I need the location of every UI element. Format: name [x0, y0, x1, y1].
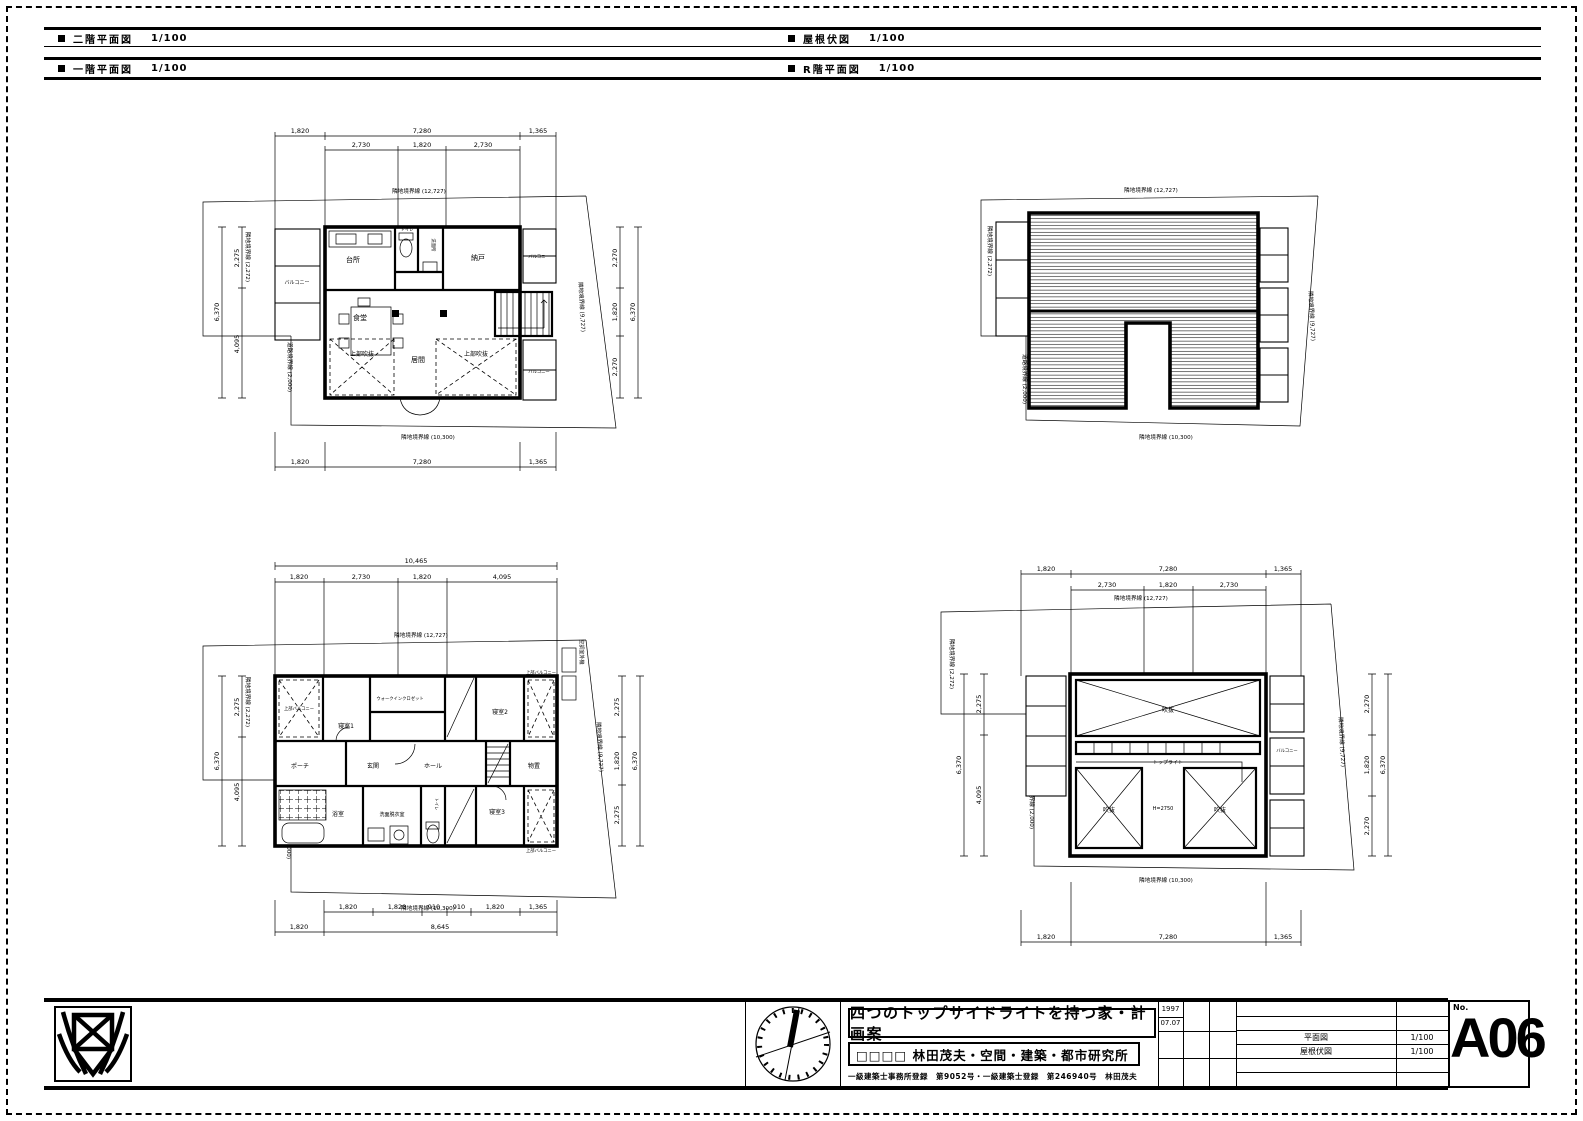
room-label-void: 吹抜: [1103, 806, 1115, 814]
section-marker-icon: [788, 35, 795, 42]
room-label-toplight: トップライト: [1153, 760, 1183, 766]
dim-label: 1,820: [291, 127, 310, 135]
dim-label: 1,820: [1363, 756, 1371, 775]
dim-label: 4,095: [233, 335, 241, 354]
dim-label: 2,275: [613, 698, 621, 717]
dim-label: 1,365: [529, 127, 548, 135]
date-year: 1997: [1158, 1005, 1183, 1013]
dim-label: 2,275: [975, 695, 983, 714]
date-monthday: 07.07: [1158, 1019, 1183, 1027]
office-logo-icon: [56, 1008, 130, 1080]
room-label-porch: ポーチ: [291, 762, 309, 770]
drawing-name-cell: 屋根伏図: [1236, 1045, 1396, 1058]
boundary-label: 隣地境界線 (9,727): [577, 282, 588, 332]
header-rule: [44, 77, 1541, 80]
boundary-label: 隣地境界線 (9,727): [1337, 717, 1348, 767]
view-title-rf: R階平面図 1/100: [788, 61, 915, 76]
dim-label: 8,645: [431, 923, 450, 931]
room-label-wic: ウォークインクロゼット: [376, 695, 423, 702]
drawing-sheet: 二階平面図 1/100 屋根伏図 1/100 一階平面図 1/100 R階平面図…: [0, 0, 1583, 1121]
dim-label: 1,820: [290, 923, 309, 931]
boundary-label: 道路境界線 (2,000): [286, 342, 294, 392]
titleblock-divider: [745, 1002, 746, 1086]
plan-second-floor: 1,820 7,280 1,365 2,730 1,820 2,730 1,82…: [186, 112, 686, 512]
view-scale: 1/100: [879, 63, 915, 74]
boundary-label: 隣地境界線 (10,300): [401, 433, 455, 441]
room-label-bedroom1: 寝室1: [338, 722, 354, 730]
project-title: 四つのトップサイドライトを持つ家・計画案: [848, 1008, 1156, 1038]
dim-label: 4,095: [233, 783, 241, 802]
titleblock-line: [1158, 1058, 1236, 1059]
section-marker-icon: [58, 35, 65, 42]
dim-label: 2,730: [474, 141, 493, 149]
firm-name: □□□□ 林田茂夫・空間・建築・都市研究所: [848, 1042, 1140, 1066]
dim-label: 7,280: [1159, 933, 1178, 941]
license-text: 一級建築士事務所登録 第9052号・一級建築士登録 第246940号 林田茂夫: [848, 1071, 1137, 1082]
boundary-label: 隣地境界線 (9,727): [1307, 291, 1318, 341]
view-label: 屋根伏図: [803, 31, 851, 46]
room-label-storage: 物置: [528, 762, 540, 770]
room-label-height-note: H=2750: [1153, 806, 1174, 812]
boundary-label: 隣地境界線 (2,272): [244, 677, 252, 727]
titleblock-divider: [1209, 1002, 1210, 1086]
view-scale: 1/100: [869, 33, 905, 44]
room-label-dining: 食堂: [353, 313, 367, 322]
dim-label: 1,365: [529, 458, 548, 466]
room-label-void: 吹抜: [1214, 806, 1226, 814]
room-label-balcony: バルコニー: [285, 280, 310, 286]
room-label-balcony: 上部バルコニー: [526, 847, 556, 854]
dim-label: 6,370: [213, 752, 221, 771]
dim-label: 2,275: [233, 698, 241, 717]
boundary-label: 隣地境界線 (2,272): [244, 232, 252, 282]
boundary-label: 隣地境界線 (10,300): [1139, 433, 1193, 441]
dim-label: 10,465: [405, 557, 428, 565]
roof-surface: [1029, 213, 1258, 408]
titleblock-divider: [840, 1002, 841, 1086]
room-label-closet: 納戸: [471, 253, 485, 262]
plan-roof: 隣地境界線 (12,727) 隣地境界線 (2,272) 道路境界線 (2,00…: [926, 166, 1426, 466]
dim-label: 4,095: [975, 786, 983, 805]
plan-first-floor: 10,465 1,820 2,730 1,820 4,095 1,820 1,8…: [186, 552, 686, 976]
dim-label: 1,820: [1159, 581, 1178, 589]
view-label: 一階平面図: [73, 61, 133, 76]
dim-label: 6,370: [955, 756, 963, 775]
header-row-2: 一階平面図 1/100 R階平面図 1/100: [44, 60, 1541, 76]
titleblock-line: [1158, 1017, 1183, 1018]
logo-box: [54, 1006, 132, 1082]
view-label: 二階平面図: [73, 31, 133, 46]
room-label-washroom: 洗面脱衣室: [379, 811, 404, 818]
north-compass-icon: [747, 1002, 839, 1086]
dim-label: 1,820: [611, 303, 619, 322]
dim-label: 1,820: [1037, 933, 1056, 941]
boundary-label: 隣地境界線 (12,727): [394, 631, 448, 639]
room-label-bedroom3: 寝室3: [489, 808, 505, 816]
dim-label: 1,365: [1274, 565, 1293, 573]
view-scale: 1/100: [151, 63, 187, 74]
dim-label: 1,820: [339, 903, 358, 911]
dim-label: 2,270: [1363, 695, 1371, 714]
titleblock-line: [1236, 1058, 1448, 1059]
room-label-bedroom2: 寝室2: [492, 708, 508, 716]
dim-label: 7,280: [413, 458, 432, 466]
room-label-void: 上部吹抜: [350, 350, 374, 358]
drawing-scale-cell: 1/100: [1396, 1031, 1448, 1044]
room-label-void: 吹抜: [1162, 706, 1174, 714]
dim-label: 1,820: [1037, 565, 1056, 573]
dim-label: 2,730: [352, 141, 371, 149]
dim-label: 2,270: [1363, 817, 1371, 836]
sheet-number: A06: [1450, 1010, 1528, 1066]
boundary-label: 隣地境界線 (12,727): [1124, 186, 1178, 194]
dim-label: 2,730: [352, 573, 371, 581]
boundary-label: 隣地境界線 (12,727): [392, 187, 446, 195]
room-label-toilet: トイレ: [433, 798, 438, 811]
room-label-balcony: 上部バルコニー: [526, 669, 556, 676]
room-label-washroom: 洗面所: [430, 239, 437, 253]
dim-label: 7,280: [413, 127, 432, 135]
view-title-f2: 二階平面図 1/100: [58, 31, 187, 46]
view-title-f1: 一階平面図 1/100: [58, 61, 187, 76]
dim-label: 2,275: [233, 249, 241, 268]
dim-label: 6,370: [629, 303, 637, 322]
dim-label: 2,275: [613, 806, 621, 825]
dim-label: 2,730: [1220, 581, 1239, 589]
dim-label: 1,820: [413, 573, 432, 581]
boundary-label: 隣地境界線 (12,727): [1114, 594, 1168, 602]
room-label-kitchen: 台所: [346, 255, 360, 264]
view-scale: 1/100: [151, 33, 187, 44]
dim-label: 1,820: [613, 752, 621, 771]
sheet-number-box: No. A06: [1448, 1000, 1530, 1088]
room-label-toilet: トイレ: [401, 228, 414, 233]
dim-label: 2,730: [1098, 581, 1117, 589]
room-label-hall: ホール: [424, 763, 442, 770]
room-label-balcony: 上部バルコニー: [284, 705, 314, 712]
titleblock-divider: [1158, 1002, 1159, 1086]
section-marker-icon: [58, 65, 65, 72]
titleblock-line: [1236, 1072, 1448, 1073]
boundary-label: 隣地境界線 (10,300): [1139, 876, 1193, 884]
room-label-entry: 玄関: [367, 762, 379, 770]
dim-label: 6,370: [631, 752, 639, 771]
dim-label: 7,280: [1159, 565, 1178, 573]
boundary-label: 隣地境界線 (9,727): [595, 722, 606, 772]
dim-label: 1,365: [1274, 933, 1293, 941]
drawing-name-cell: 平面図: [1236, 1031, 1396, 1044]
titleblock-line: [1236, 1016, 1448, 1017]
section-marker-icon: [788, 65, 795, 72]
dim-label: 2,270: [611, 249, 619, 268]
room-label-balcony: バルコニー: [1276, 748, 1297, 754]
dim-label: 1,820: [413, 141, 432, 149]
room-label-living: 居間: [411, 356, 425, 364]
boundary-label: 隣地境界線 (2,272): [986, 226, 994, 276]
drawing-scale-cell: 1/100: [1396, 1045, 1448, 1058]
boundary-label: 隣地境界線 (2,272): [948, 639, 956, 689]
dim-label: 6,370: [213, 303, 221, 322]
room-label-balcony: バルコニー: [528, 369, 549, 375]
dim-label: 1,820: [486, 903, 505, 911]
walls: [275, 227, 556, 400]
dim-label: 2,270: [611, 358, 619, 377]
view-label: R階平面図: [803, 61, 861, 76]
label-ac-unit: 空調室外機: [578, 639, 585, 664]
titleblock-rule: [44, 1086, 1448, 1090]
dim-label: 4,095: [493, 573, 512, 581]
view-title-roof: 屋根伏図 1/100: [788, 31, 905, 46]
boundary-label: 隣地境界線 (10,300): [401, 904, 455, 912]
titleblock-line: [1158, 1031, 1236, 1032]
dim-label: 1,820: [291, 458, 310, 466]
plan-roof-floor: 1,820 7,280 1,365 2,730 1,820 2,730 1,82…: [926, 552, 1426, 972]
dim-label: 1,365: [529, 903, 548, 911]
titleblock-rule: [44, 998, 1448, 1002]
room-label-bath: 浴室: [332, 810, 344, 818]
dim-label: 1,820: [290, 573, 309, 581]
room-label-balcony: バルコニー: [528, 254, 549, 260]
header-row-1: 二階平面図 1/100 屋根伏図 1/100: [44, 30, 1541, 47]
titleblock-divider: [1183, 1002, 1184, 1086]
room-label-void: 上部吹抜: [464, 350, 488, 358]
dim-label: 6,370: [1379, 756, 1387, 775]
